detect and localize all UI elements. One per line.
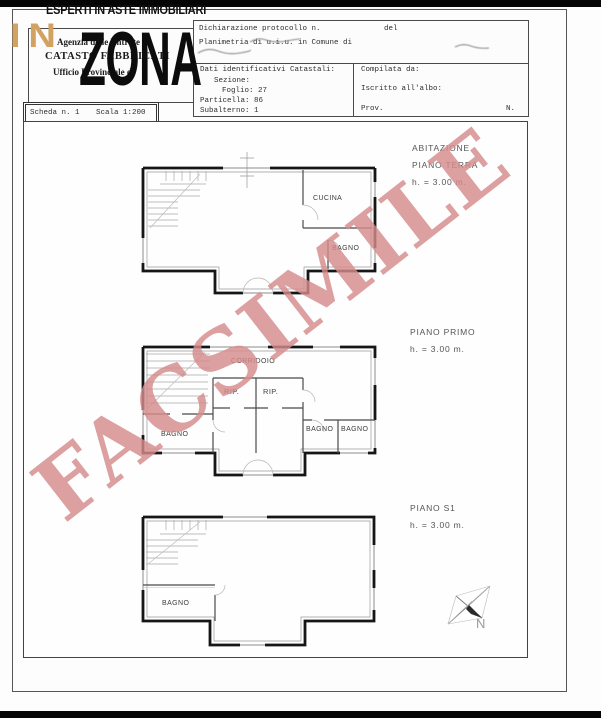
floor-height-primo: h. = 3.00 m.	[410, 344, 465, 354]
room-label-bagno-r1: BAGNO	[306, 426, 333, 433]
floor-title-piano-primo: PIANO PRIMO	[410, 327, 475, 337]
scanned-cadastral-document: Agenzia delle Entrate CATASTO FABBRICATI…	[0, 0, 601, 718]
logo-zona: ZONA	[79, 22, 202, 98]
floor-height-s1: h. = 3.00 m.	[410, 520, 465, 530]
floor-title-piano-s1: PIANO S1	[410, 503, 456, 513]
compass-north-label: N	[476, 616, 485, 631]
room-label-bagno-r2: BAGNO	[341, 426, 368, 433]
room-label-bagno-s1: BAGNO	[162, 600, 189, 607]
plan-piano-s1	[143, 517, 374, 645]
brand-tagline: ESPERTI IN ASTE IMMOBILIARI	[46, 2, 206, 17]
handwritten-smudges	[198, 39, 489, 54]
stairs-terra	[148, 171, 206, 228]
logo-in: IN	[10, 19, 64, 53]
stairs-s1	[146, 520, 206, 564]
